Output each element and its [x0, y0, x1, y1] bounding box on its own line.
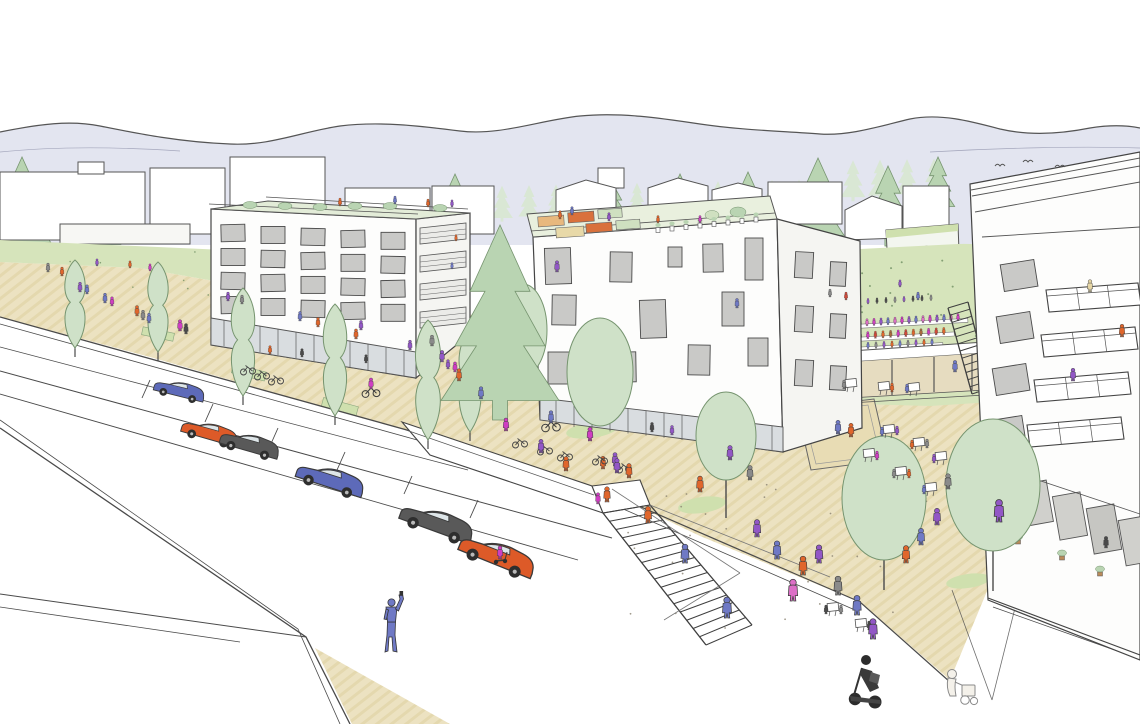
window — [668, 247, 682, 267]
window — [794, 306, 813, 333]
window — [301, 252, 325, 270]
right-building — [970, 152, 1140, 660]
plant-pot — [1060, 556, 1065, 560]
plant-pot — [1098, 572, 1103, 576]
window — [261, 250, 285, 268]
window — [381, 304, 405, 321]
table — [913, 437, 925, 446]
window — [722, 292, 744, 326]
window — [381, 280, 405, 298]
roof-pot — [740, 219, 744, 224]
roof-pot — [712, 222, 716, 227]
window — [748, 338, 768, 366]
table — [863, 448, 875, 457]
window — [221, 272, 245, 290]
window — [261, 226, 285, 243]
window — [261, 274, 285, 292]
window — [610, 252, 633, 282]
window — [1000, 260, 1038, 292]
table — [883, 424, 895, 433]
round-tree — [696, 392, 756, 480]
table — [935, 451, 947, 460]
window — [261, 298, 285, 315]
window — [639, 300, 666, 339]
window — [221, 224, 245, 242]
round-tree — [946, 419, 1040, 551]
roof-pot — [698, 223, 702, 228]
window — [794, 360, 813, 387]
roof-pot — [670, 226, 674, 231]
table — [925, 482, 937, 491]
urban-sketch-scene — [0, 0, 1140, 724]
window — [341, 230, 365, 248]
table — [827, 602, 839, 611]
window — [301, 300, 325, 318]
table — [908, 382, 920, 391]
window — [996, 312, 1034, 344]
table — [895, 466, 907, 475]
window — [221, 248, 245, 265]
window — [703, 244, 723, 272]
round-tree — [567, 318, 633, 426]
window — [341, 302, 365, 320]
window — [341, 278, 365, 296]
table — [878, 381, 890, 390]
roof-pot — [754, 217, 758, 222]
phone — [400, 591, 404, 596]
window — [341, 254, 365, 271]
window — [301, 228, 325, 246]
window — [992, 364, 1030, 396]
roof-pot — [656, 228, 660, 233]
window — [381, 256, 405, 274]
window — [688, 345, 711, 375]
window — [794, 252, 813, 279]
middle-building — [527, 196, 862, 452]
window — [829, 314, 846, 339]
round-tree — [842, 436, 926, 560]
roof-pot — [726, 220, 730, 225]
window — [552, 295, 577, 325]
window — [745, 238, 763, 280]
roof-pot — [684, 225, 688, 230]
table — [845, 378, 857, 387]
sketch-canvas — [0, 0, 1140, 724]
window — [381, 232, 405, 249]
table — [855, 618, 867, 627]
window — [829, 262, 846, 287]
window — [301, 276, 325, 293]
